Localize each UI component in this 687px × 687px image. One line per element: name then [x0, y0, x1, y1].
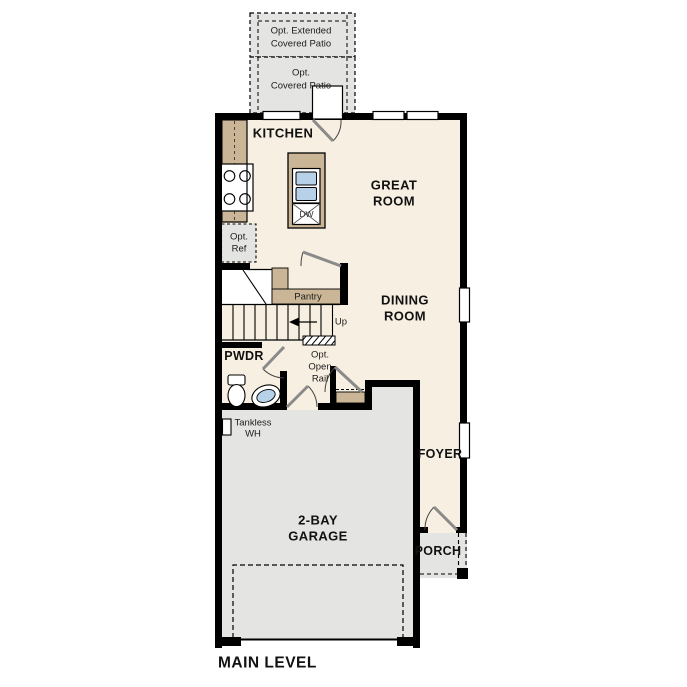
room-label-porch: PORCH	[415, 545, 462, 558]
annotation-up: Up	[335, 317, 347, 327]
annotation-opt-ref-2: Ref	[232, 244, 247, 254]
annotation-open-rail-1: Opt.	[311, 350, 329, 360]
greatroom-window-2	[407, 112, 438, 120]
dining-window	[460, 288, 470, 322]
annotation-patio-extended-1: Opt. Extended	[271, 26, 332, 36]
room-label-great-room-1: GREAT	[371, 179, 418, 192]
room-label-dining-2: ROOM	[384, 310, 426, 323]
annotation-tankless-2: WH	[245, 429, 261, 439]
annotation-patio-covered-1: Opt.	[292, 68, 310, 78]
annotation-tankless-1: Tankless	[235, 418, 272, 428]
floorplan-drawing	[0, 0, 687, 687]
open-rail-hatch	[303, 336, 335, 345]
room-label-dining-1: DINING	[381, 294, 429, 307]
room-label-garage-2: GARAGE	[288, 530, 347, 543]
floorplan-canvas: KITCHEN GREAT ROOM DINING ROOM PWDR FOYE…	[0, 0, 687, 687]
plan-title: MAIN LEVEL	[218, 655, 317, 671]
greatroom-window-1	[373, 112, 404, 120]
floor-fills	[222, 120, 467, 640]
toilet	[228, 375, 245, 407]
annotation-pantry: Pantry	[294, 292, 321, 302]
room-label-kitchen: KITCHEN	[253, 127, 314, 140]
room-label-foyer: FOYER	[418, 448, 463, 461]
annotation-opt-ref-1: Opt.	[230, 232, 248, 242]
tankless-water-heater	[223, 419, 232, 435]
annotation-open-rail-2: Open	[308, 362, 331, 372]
annotation-open-rail-3: Rail	[312, 374, 328, 384]
room-label-pwdr: PWDR	[224, 350, 263, 363]
room-label-great-room-2: ROOM	[373, 195, 415, 208]
annotation-patio-covered-2: Covered Patio	[271, 81, 331, 91]
stove	[221, 164, 253, 211]
room-label-garage-1: 2-BAY	[298, 514, 338, 527]
kitchen-window	[263, 112, 300, 120]
annotation-dw: DW	[299, 210, 313, 219]
annotation-patio-extended-2: Covered Patio	[271, 39, 331, 49]
